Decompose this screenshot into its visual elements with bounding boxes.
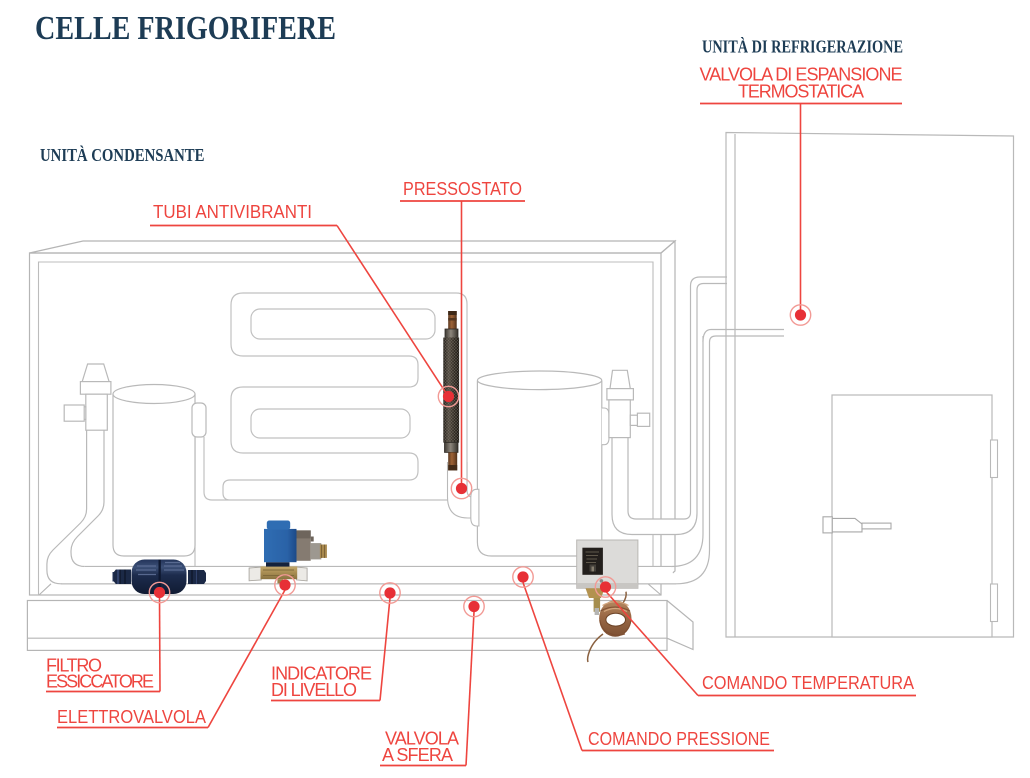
svg-text:COMANDO TEMPERATURA: COMANDO TEMPERATURA [702,673,914,693]
svg-text:TERMOSTATICA: TERMOSTATICA [738,82,864,102]
svg-text:TUBI ANTIVIBRANTI: TUBI ANTIVIBRANTI [153,202,312,222]
svg-text:ELETTROVALVOLA: ELETTROVALVOLA [57,707,206,727]
svg-text:A SFERA: A SFERA [382,745,453,765]
svg-text:UNITÀ DI REFRIGERAZIONE: UNITÀ DI REFRIGERAZIONE [702,36,903,56]
svg-text:UNITÀ CONDENSANTE: UNITÀ CONDENSANTE [40,145,205,165]
svg-text:DI LIVELLO: DI LIVELLO [271,680,357,700]
svg-text:PRESSOSTATO: PRESSOSTATO [403,179,522,199]
svg-text:COMANDO PRESSIONE: COMANDO PRESSIONE [588,729,770,749]
svg-text:CELLE FRIGORIFERE: CELLE FRIGORIFERE [35,10,336,47]
svg-text:ESSICCATORE: ESSICCATORE [46,672,154,692]
